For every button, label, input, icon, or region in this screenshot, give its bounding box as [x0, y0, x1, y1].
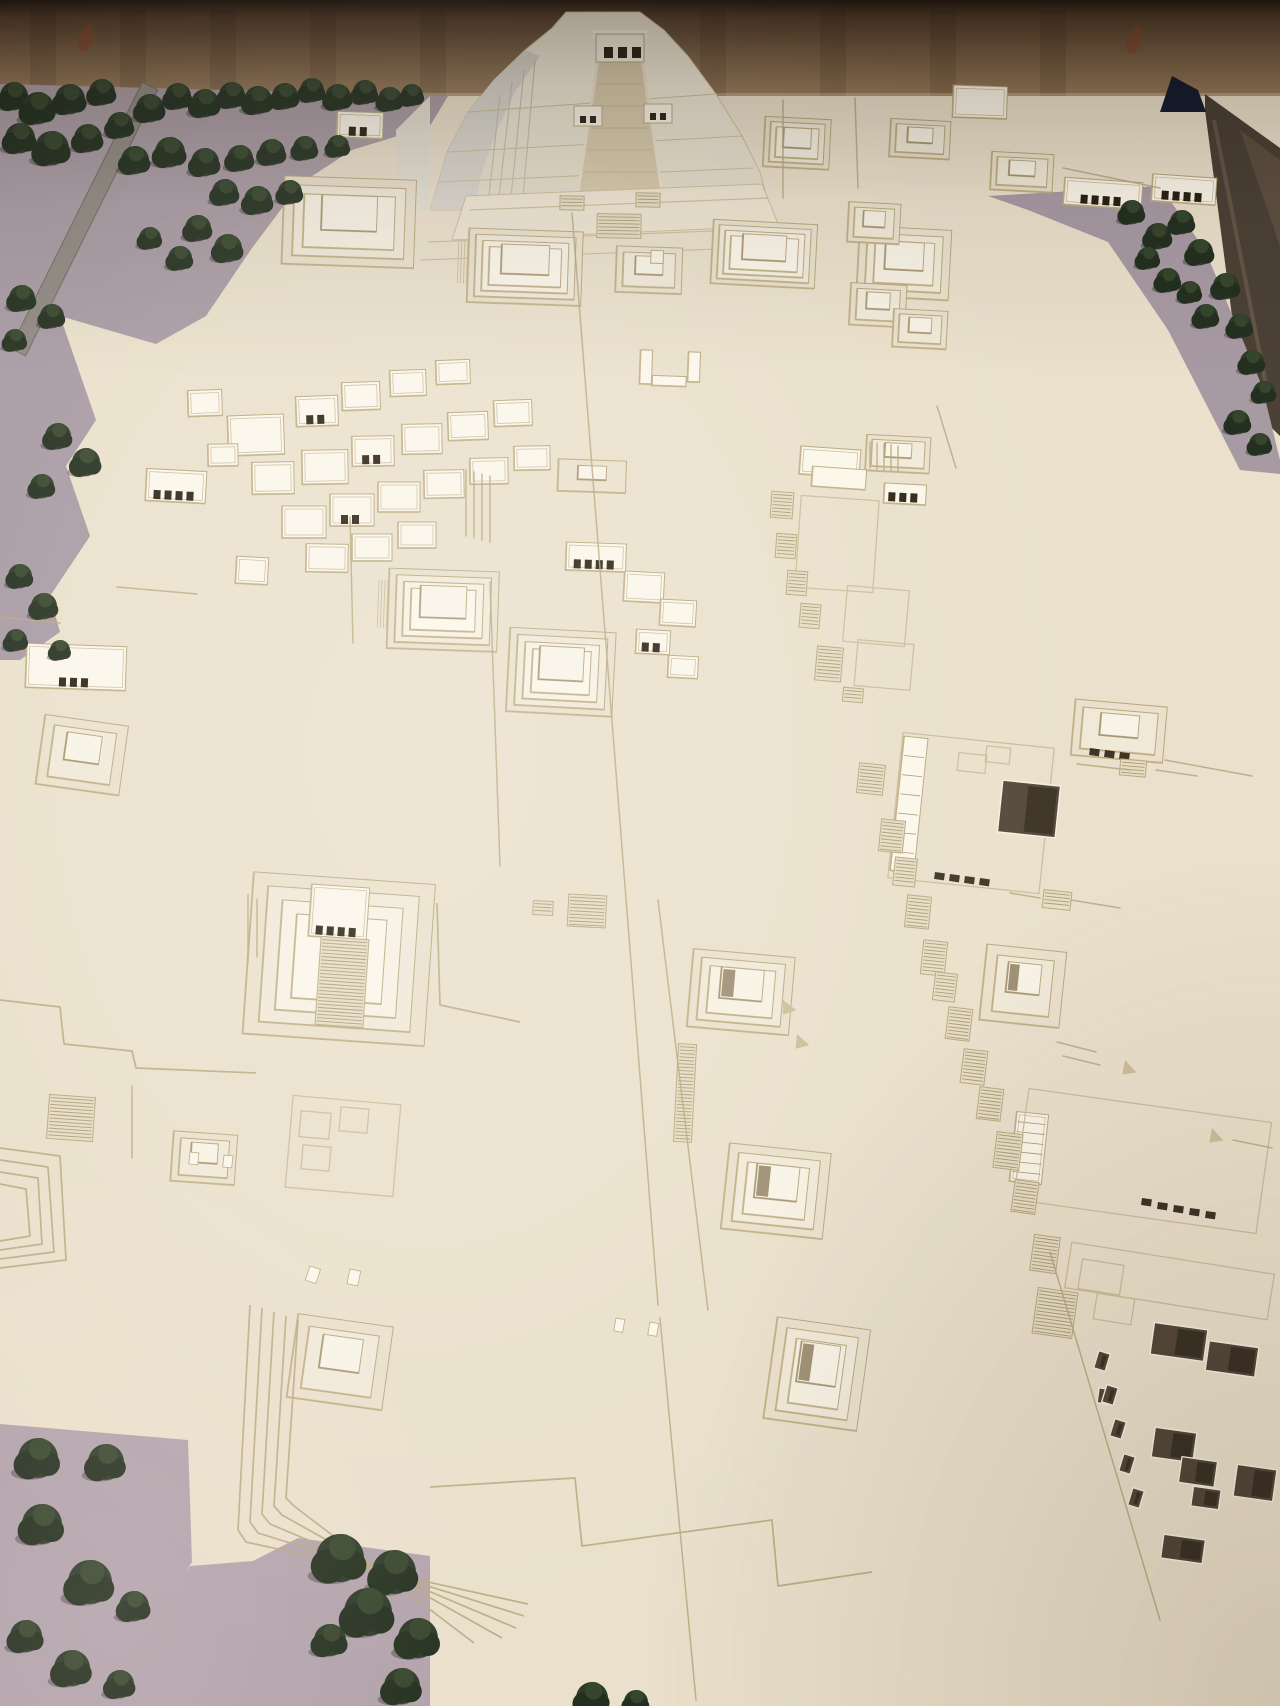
model-scene-svg	[0, 0, 1280, 1706]
lighting-overlays	[0, 0, 1280, 1706]
warm-floor-glow	[0, 0, 1280, 1706]
museum-model-photo	[0, 0, 1280, 1706]
